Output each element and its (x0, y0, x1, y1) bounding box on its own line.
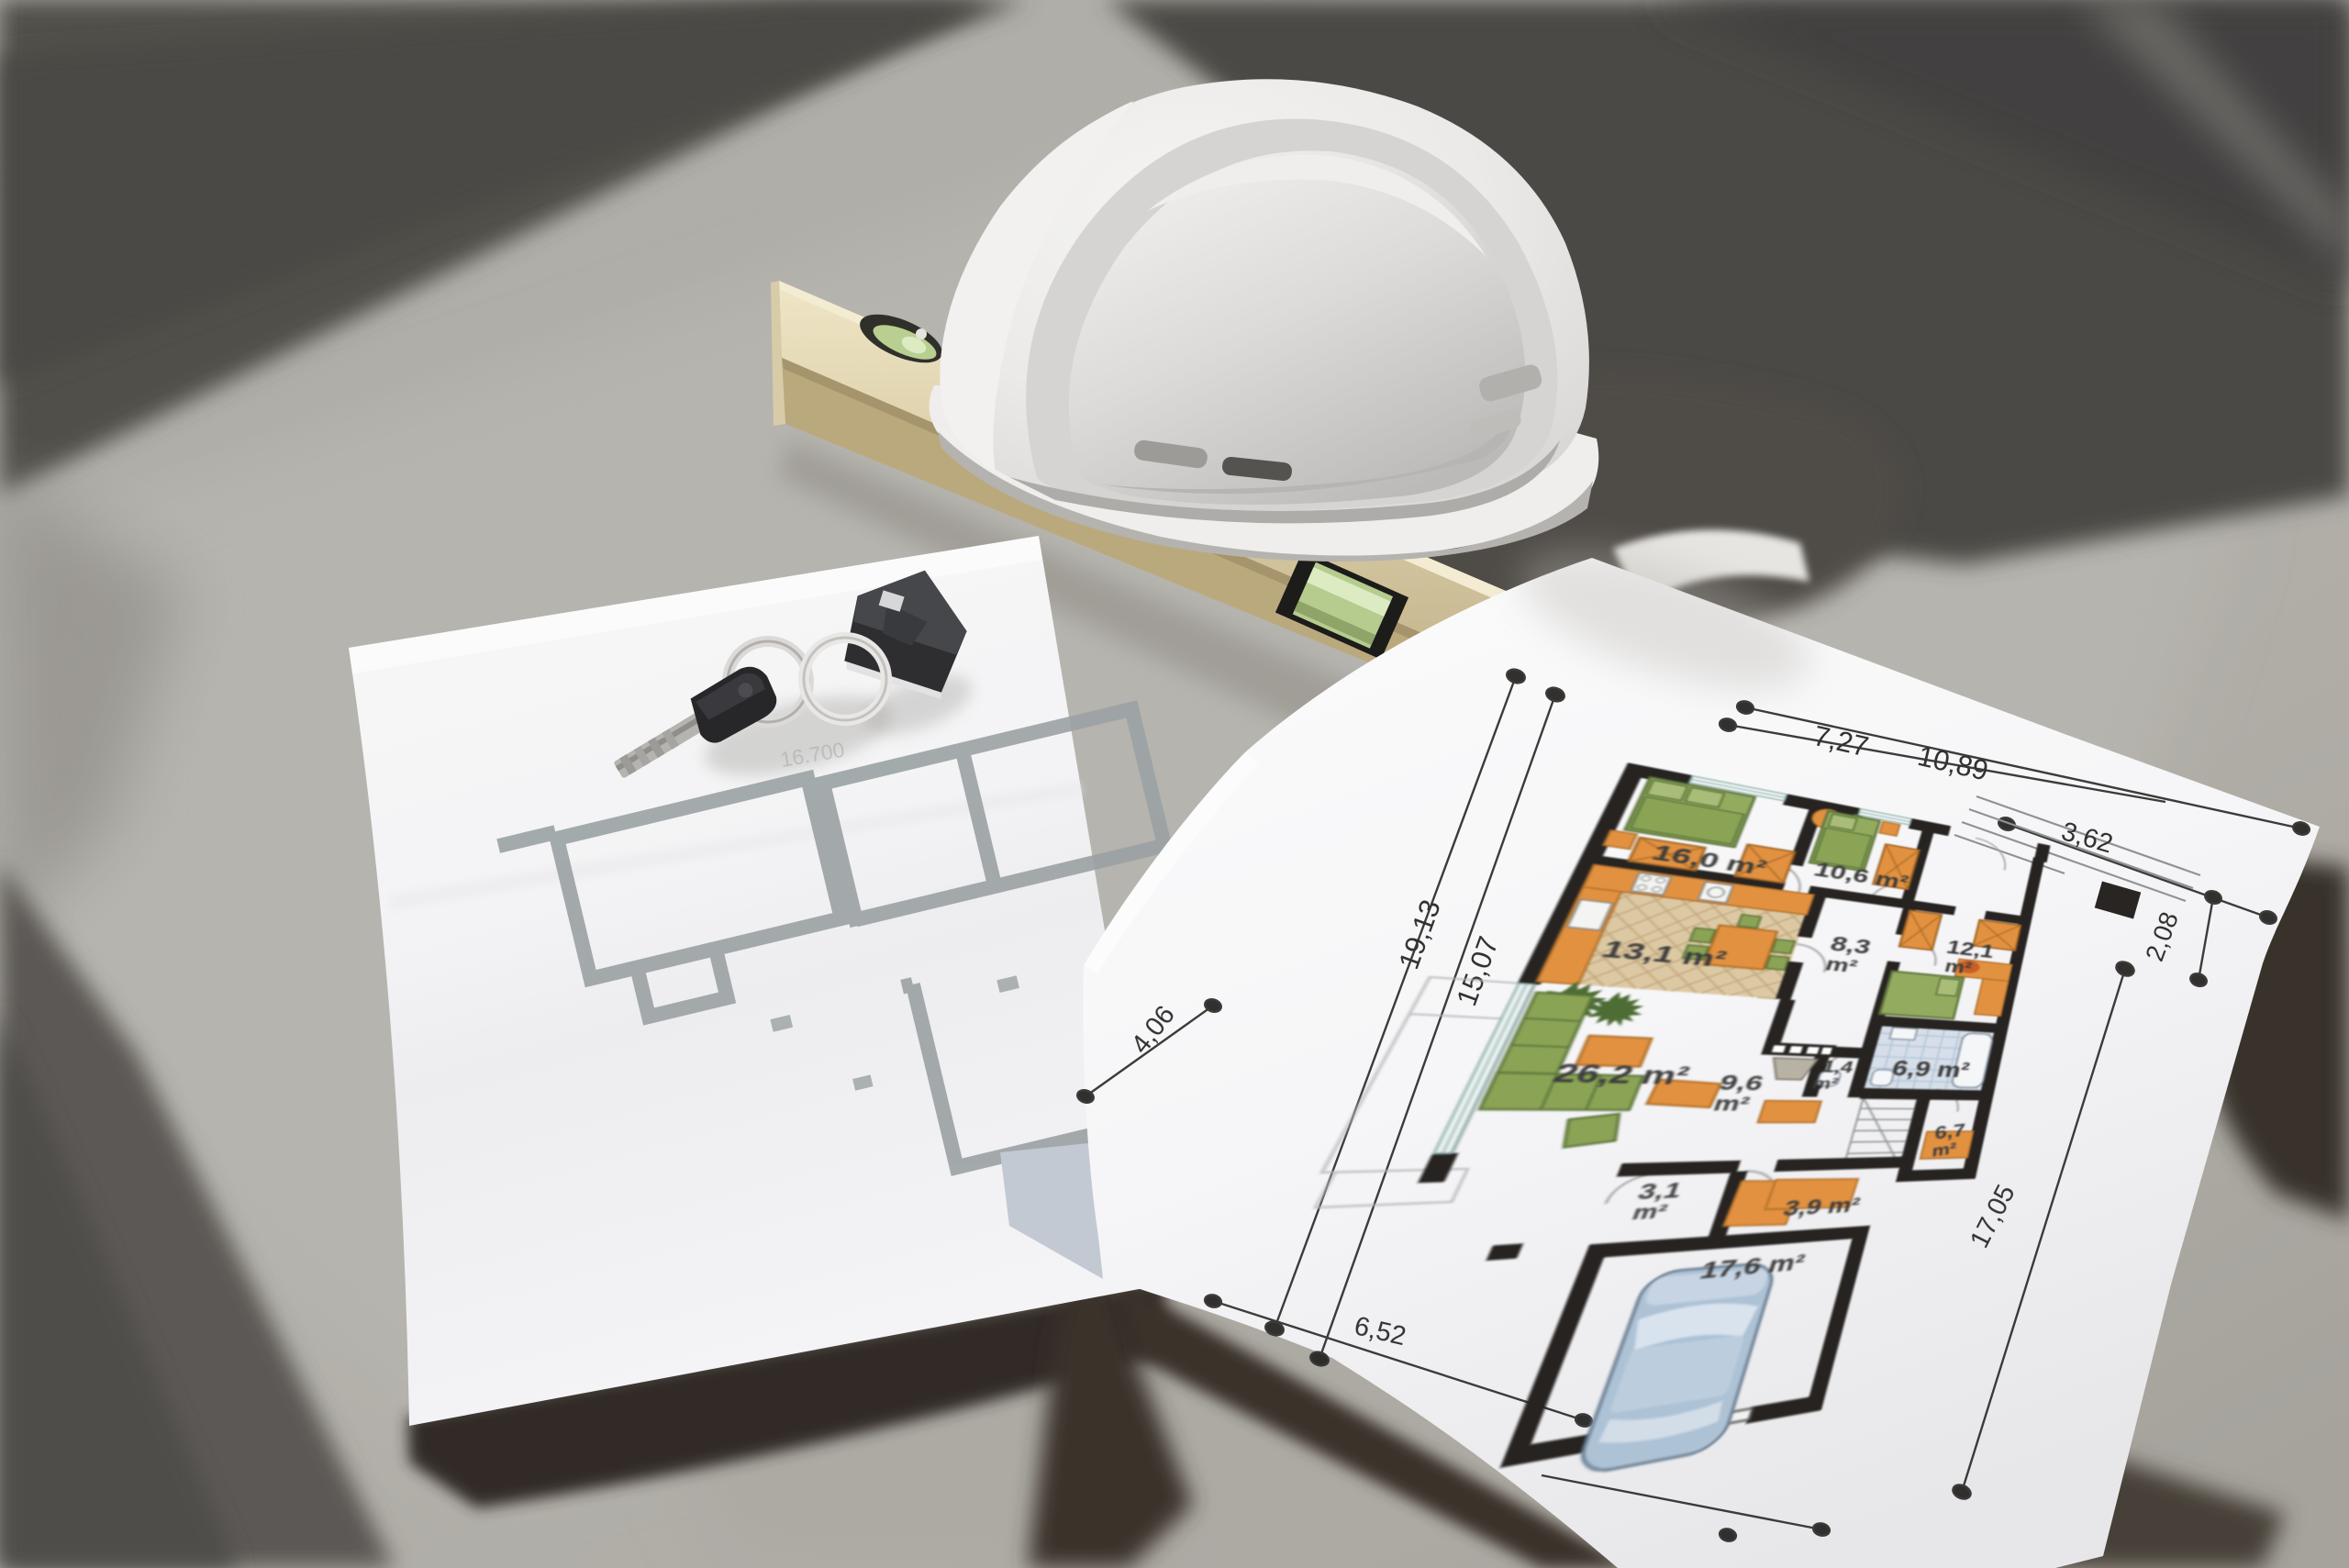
svg-text:9,6: 9,6 (1716, 1070, 1767, 1095)
svg-text:m²: m² (1932, 1140, 1957, 1161)
svg-text:m²: m² (1943, 957, 1974, 978)
svg-text:1,4: 1,4 (1820, 1057, 1855, 1076)
svg-text:m²: m² (1710, 1093, 1753, 1116)
svg-text:m²: m² (1823, 954, 1860, 977)
svg-text:26,2 m²: 26,2 m² (1548, 1059, 1693, 1090)
svg-text:6,9 m²: 6,9 m² (1889, 1056, 1972, 1082)
svg-text:3,9 m²: 3,9 m² (1780, 1194, 1862, 1220)
svg-text:m²: m² (1810, 1075, 1841, 1093)
